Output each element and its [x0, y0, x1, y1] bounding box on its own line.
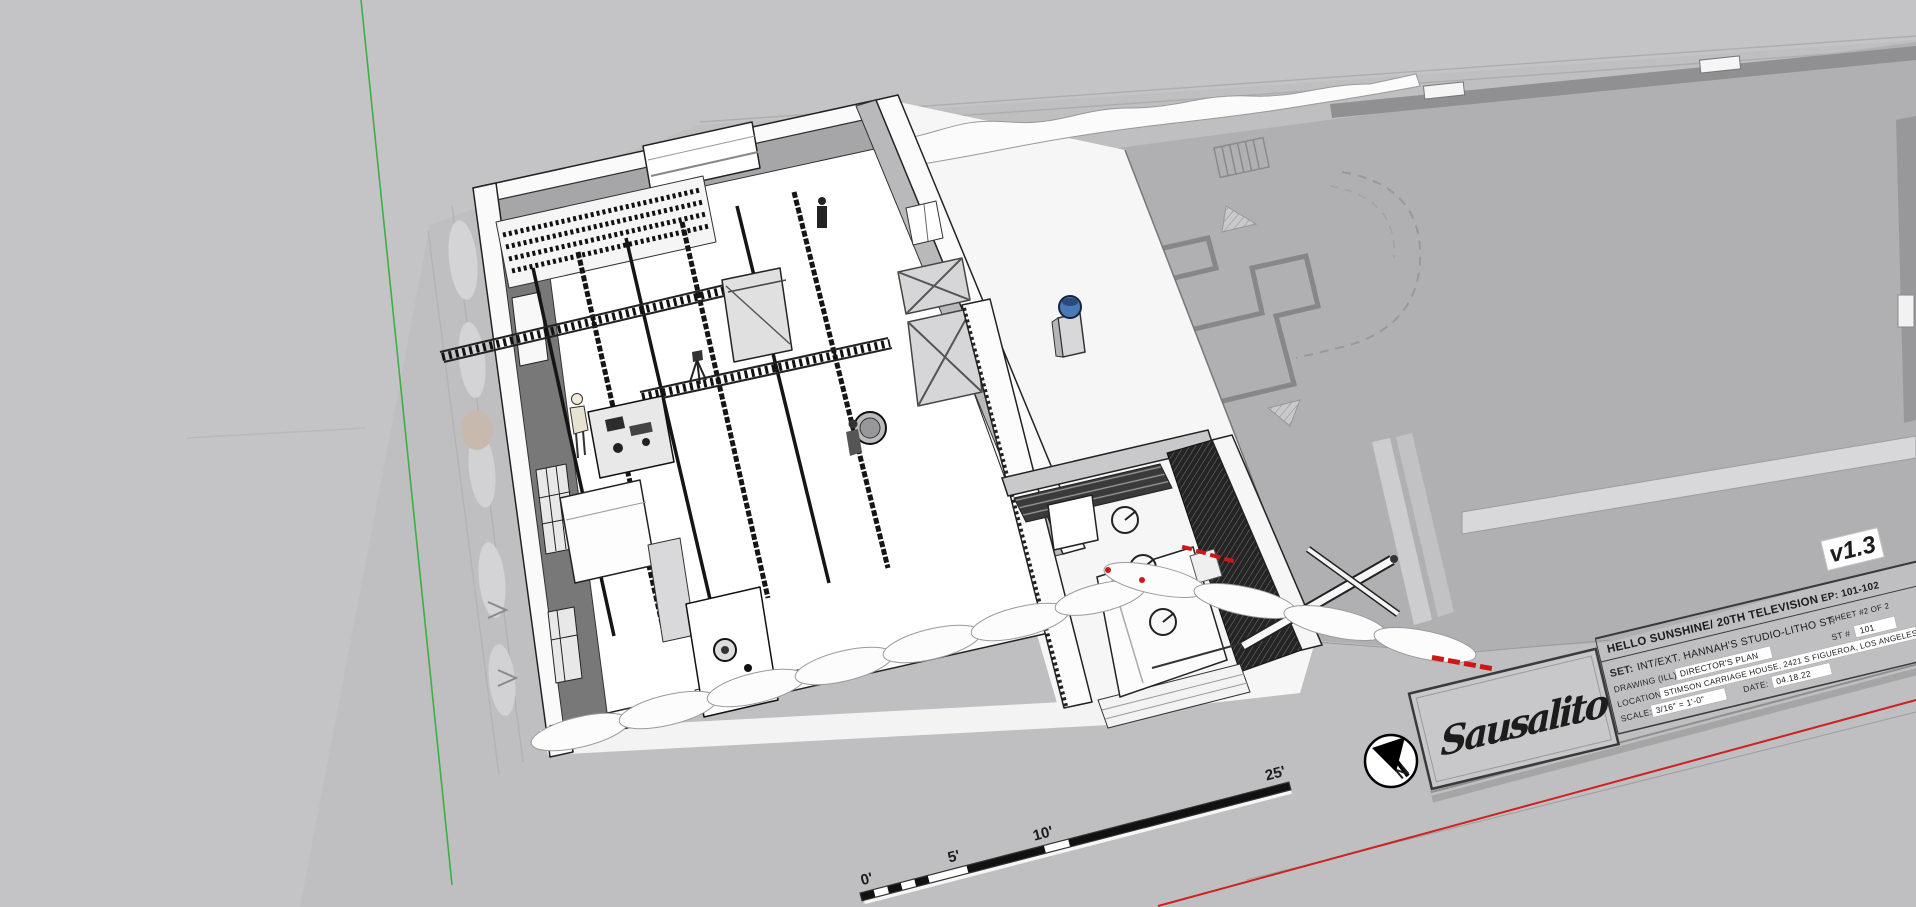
- sketchup-viewport[interactable]: 0' 5' 10' 25' N v1.3 Sausalito: [0, 0, 1916, 907]
- frame-stack: [722, 268, 792, 362]
- figure-standing: [817, 197, 827, 228]
- right-wall-window: [906, 201, 943, 245]
- north-arrow-icon: N: [1365, 735, 1417, 787]
- work-table: [560, 480, 655, 583]
- torn-tan-blob: [461, 410, 493, 450]
- bedroom-desk: [1048, 495, 1098, 550]
